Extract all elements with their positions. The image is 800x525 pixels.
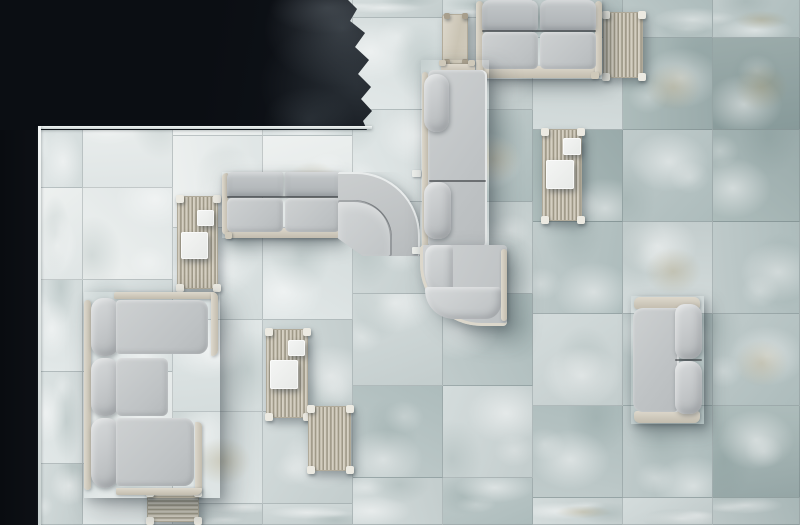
serving-tray-small (197, 210, 214, 226)
floor-tile (353, 294, 443, 386)
floor-tile (353, 478, 443, 525)
side-table-top (442, 14, 468, 64)
slatted-coffee-table-center (266, 329, 308, 418)
deck-edge-vertical (38, 126, 41, 525)
table-leg (444, 13, 450, 19)
table-foot (346, 466, 354, 474)
table-foot (176, 284, 184, 292)
floor-tile (38, 464, 83, 525)
sofa-arm-right (595, 1, 602, 76)
table-foot (265, 328, 273, 336)
floor-tile (533, 314, 623, 406)
seat-cushion (482, 32, 538, 69)
curve-end-rail (501, 249, 507, 321)
floor-tile (533, 498, 623, 525)
back-cushion (285, 172, 340, 197)
table-foot (541, 216, 549, 224)
back-cushion (227, 172, 283, 197)
table-foot (602, 11, 610, 19)
table-foot (638, 11, 646, 19)
seat-cushion (285, 198, 340, 232)
table-leg (462, 13, 468, 19)
deck-edge-horizontal (38, 126, 372, 129)
chaise-cushion-bottom (116, 418, 194, 486)
two-seat-sofa-top (476, 0, 602, 79)
floor-tile (443, 386, 533, 478)
sectional-sofa-left (84, 292, 220, 498)
floor-tile (38, 372, 83, 464)
sofa-foot (225, 232, 232, 239)
two-seat-sofa-right (631, 296, 704, 424)
chaise-rail-right (211, 292, 218, 356)
floor-tile (713, 222, 800, 314)
table-foot (638, 73, 646, 81)
floor-tile (533, 222, 623, 314)
back-bolster (91, 358, 119, 416)
pool-water-top (0, 0, 372, 130)
spine-rail (84, 300, 91, 490)
mid-seat-cushion (116, 358, 168, 416)
floor-tile (38, 188, 83, 280)
sofa-foot (591, 72, 599, 79)
floor-tile (713, 0, 800, 38)
sofa-straight-module-middle (222, 172, 340, 238)
slatted-side-table-top-right (603, 12, 643, 78)
seat-cushion (540, 32, 596, 69)
chaise-rail-bottom (116, 488, 202, 495)
floor-tile (263, 504, 353, 525)
seam-line (482, 30, 596, 32)
table-foot (176, 195, 184, 203)
back-cushion (482, 0, 538, 31)
table-foot (346, 405, 354, 413)
module-connector (412, 170, 421, 177)
seam-line (675, 359, 702, 361)
slatted-coffee-table-right (542, 129, 582, 221)
floor-tile (353, 0, 443, 18)
chaise-rail-top (114, 292, 218, 299)
back-bolster (424, 182, 451, 239)
chaise-rail-right2 (195, 422, 202, 494)
floor-tile (713, 498, 800, 525)
slatted-coffee-table-left (177, 196, 218, 289)
floor-tile (623, 498, 713, 525)
back-bolster (91, 418, 119, 488)
table-foot (194, 517, 202, 525)
floor-tile (713, 38, 800, 130)
back-cushion (675, 304, 702, 359)
bench-foot (468, 60, 475, 66)
serving-tray-large (546, 160, 574, 189)
table-foot (307, 405, 315, 413)
floor-tile (713, 314, 800, 406)
bench-foot (439, 60, 446, 66)
table-foot (265, 413, 273, 421)
floor-tile (353, 386, 443, 478)
serving-tray-small (563, 138, 581, 155)
table-foot (541, 128, 549, 136)
back-bolster (424, 74, 449, 132)
table-foot (303, 328, 311, 336)
serving-tray-large (181, 232, 208, 259)
seat-cushion (227, 198, 283, 232)
seam-line (227, 196, 340, 198)
serving-tray-small (288, 340, 305, 356)
table-foot (602, 73, 610, 81)
floor-tile (533, 406, 623, 498)
serving-tray-large (270, 360, 298, 389)
back-bolster (91, 298, 119, 356)
back-cushion (540, 0, 596, 31)
table-foot (307, 466, 315, 474)
table-foot (213, 284, 221, 292)
table-foot (213, 195, 221, 203)
floor-tile (713, 130, 800, 222)
pool-terrace-scene (0, 0, 800, 525)
table-foot (146, 517, 154, 525)
table-foot (577, 216, 585, 224)
sofa-deck (633, 308, 679, 412)
back-cushion (675, 361, 702, 414)
slatted-side-table-lower (308, 406, 351, 471)
chaise-cushion-top (116, 300, 208, 354)
table-foot (577, 128, 585, 136)
floor-tile (38, 280, 83, 372)
floor-tile (83, 188, 173, 280)
floor-tile (623, 130, 713, 222)
floor-tile (263, 228, 353, 320)
sofa-bench-vertical (421, 60, 489, 248)
floor-tile (443, 478, 533, 525)
floor-tile (713, 406, 800, 498)
